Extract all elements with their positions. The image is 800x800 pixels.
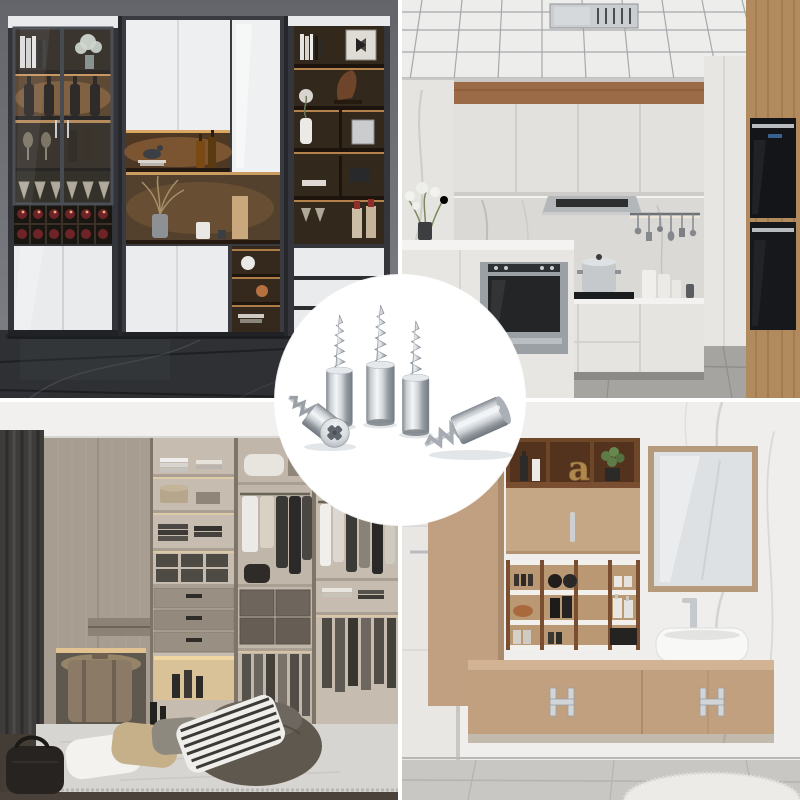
open-shelf-column: [232, 246, 280, 332]
product-badge-circle: [275, 275, 525, 525]
lit-niche: [154, 656, 234, 700]
display-niche: [126, 172, 280, 244]
wood-appliance-column: [746, 0, 800, 398]
glass-display-cabinet: [8, 16, 118, 336]
mirror: [648, 446, 758, 592]
drawer-stack: [154, 588, 234, 652]
open-grid-shelves: [506, 560, 640, 650]
upper-cabinets: [454, 104, 704, 196]
screw-upright-3: [402, 321, 428, 436]
wood-trim-band: [454, 82, 704, 104]
screw-upright-1: [326, 315, 352, 428]
bathroom-floor: [402, 758, 800, 800]
shelf-column: [152, 438, 234, 732]
screw-upright-2: [367, 305, 395, 426]
wine-bottle-rack: [14, 204, 112, 244]
tall-cabinet: [704, 56, 746, 346]
upper-cabinet-door: [506, 488, 640, 554]
handbag-shelf: [244, 564, 270, 583]
curtain: [0, 430, 44, 734]
screw-product-photo: [275, 275, 525, 525]
center-cabinet-unit: [122, 16, 284, 337]
decor-letter-a: a: [568, 449, 590, 489]
product-collage: a: [0, 0, 800, 800]
ceiling-vent: [550, 4, 638, 28]
whisky-shelf-niche: [124, 130, 232, 172]
upper-cubby-shelf: a: [506, 438, 640, 489]
range-hood: [542, 196, 642, 215]
screw-lying-right: [419, 394, 514, 458]
suitcase-niche: [56, 648, 146, 728]
vanity-cabinet: [468, 660, 774, 743]
suitcase: [68, 660, 132, 722]
vessel-sink: [656, 628, 748, 662]
built-in-ovens: [750, 118, 796, 330]
